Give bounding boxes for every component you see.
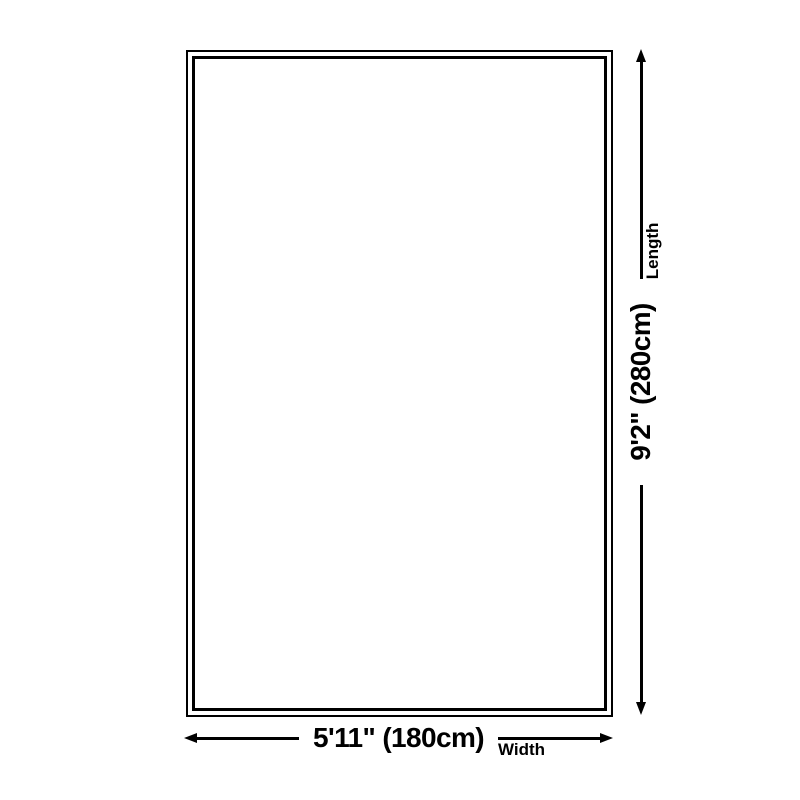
rug-dimension-diagram: 5'11" (180cm) Width 9'2" (280cm) Length: [0, 0, 800, 800]
arrowhead-left-icon: [184, 733, 197, 743]
width-arrow-right-segment: Width: [498, 716, 613, 760]
dimension-line: [640, 485, 643, 702]
length-arrow-top-segment: Length: [619, 49, 663, 279]
width-dimension: 5'11" (180cm) Width: [184, 716, 613, 760]
length-dimension: 9'2" (280cm) Length: [619, 49, 663, 715]
length-arrow-bottom-segment: [619, 485, 663, 715]
dimension-line: [197, 737, 299, 740]
width-arrow-left-segment: [184, 716, 299, 760]
rug-outline-inner: [192, 56, 607, 711]
arrowhead-right-icon: [600, 733, 613, 743]
length-axis-label: Length: [644, 223, 661, 280]
arrowhead-up-icon: [636, 49, 646, 62]
rug-outline-outer: [186, 50, 613, 717]
width-axis-label: Width: [498, 741, 545, 758]
arrowhead-down-icon: [636, 702, 646, 715]
width-value: 5'11" (180cm): [313, 716, 484, 760]
length-value: 9'2" (280cm): [619, 303, 663, 461]
